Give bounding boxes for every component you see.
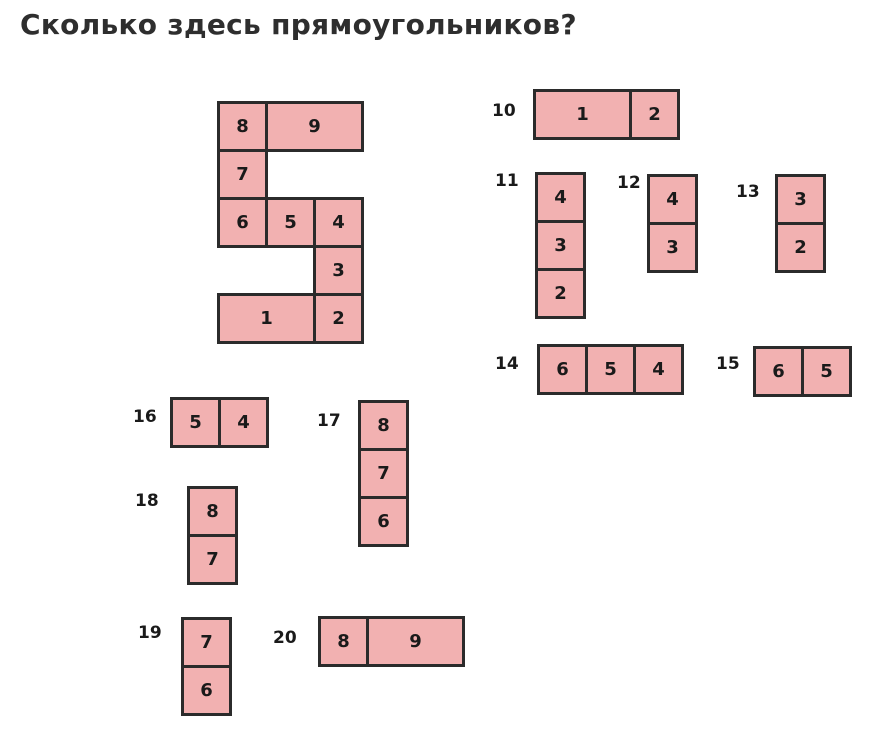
cell-14-5: 5 bbox=[585, 344, 636, 395]
cell-11-4: 4 bbox=[535, 172, 586, 223]
figure-label-15: 15 bbox=[716, 356, 740, 373]
cell-16-4: 4 bbox=[218, 397, 269, 448]
figure-label-19: 19 bbox=[138, 625, 162, 642]
cell-14-6: 6 bbox=[537, 344, 588, 395]
cell-main-3: 3 bbox=[313, 245, 364, 296]
cell-12-4: 4 bbox=[647, 174, 698, 225]
figure-label-11: 11 bbox=[495, 173, 519, 190]
cell-17-7: 7 bbox=[358, 448, 409, 499]
cell-14-4: 4 bbox=[633, 344, 684, 395]
cell-17-8: 8 bbox=[358, 400, 409, 451]
figure-label-13: 13 bbox=[736, 184, 760, 201]
cell-18-8: 8 bbox=[187, 486, 238, 537]
cell-main-8: 8 bbox=[217, 101, 268, 152]
cell-main-4: 4 bbox=[313, 197, 364, 248]
page-title: Сколько здесь прямоугольников? bbox=[20, 8, 577, 41]
cell-18-7: 7 bbox=[187, 534, 238, 585]
cell-19-7: 7 bbox=[181, 617, 232, 668]
figure-label-12: 12 bbox=[617, 175, 641, 192]
cell-main-7: 7 bbox=[217, 149, 268, 200]
cell-11-2: 2 bbox=[535, 268, 586, 319]
figure-label-10: 10 bbox=[492, 103, 516, 120]
cell-main-9: 9 bbox=[265, 101, 364, 152]
figure-label-17: 17 bbox=[317, 413, 341, 430]
cell-15-5: 5 bbox=[801, 346, 852, 397]
cell-main-5: 5 bbox=[265, 197, 316, 248]
cell-19-6: 6 bbox=[181, 665, 232, 716]
cell-11-3: 3 bbox=[535, 220, 586, 271]
cell-10-1: 1 bbox=[533, 89, 632, 140]
figure-label-18: 18 bbox=[135, 493, 159, 510]
figure-label-16: 16 bbox=[133, 409, 157, 426]
cell-10-2: 2 bbox=[629, 89, 680, 140]
cell-13-2: 2 bbox=[775, 222, 826, 273]
cell-13-3: 3 bbox=[775, 174, 826, 225]
cell-main-6: 6 bbox=[217, 197, 268, 248]
cell-main-2: 2 bbox=[313, 293, 364, 344]
cell-16-5: 5 bbox=[170, 397, 221, 448]
cell-12-3: 3 bbox=[647, 222, 698, 273]
cell-main-1: 1 bbox=[217, 293, 316, 344]
figure-label-14: 14 bbox=[495, 356, 519, 373]
figure-label-20: 20 bbox=[273, 630, 297, 647]
cell-15-6: 6 bbox=[753, 346, 804, 397]
cell-17-6: 6 bbox=[358, 496, 409, 547]
cell-20-8: 8 bbox=[318, 616, 369, 667]
cell-20-9: 9 bbox=[366, 616, 465, 667]
puzzle-board: Сколько здесь прямоугольников? 897654312… bbox=[0, 0, 869, 733]
